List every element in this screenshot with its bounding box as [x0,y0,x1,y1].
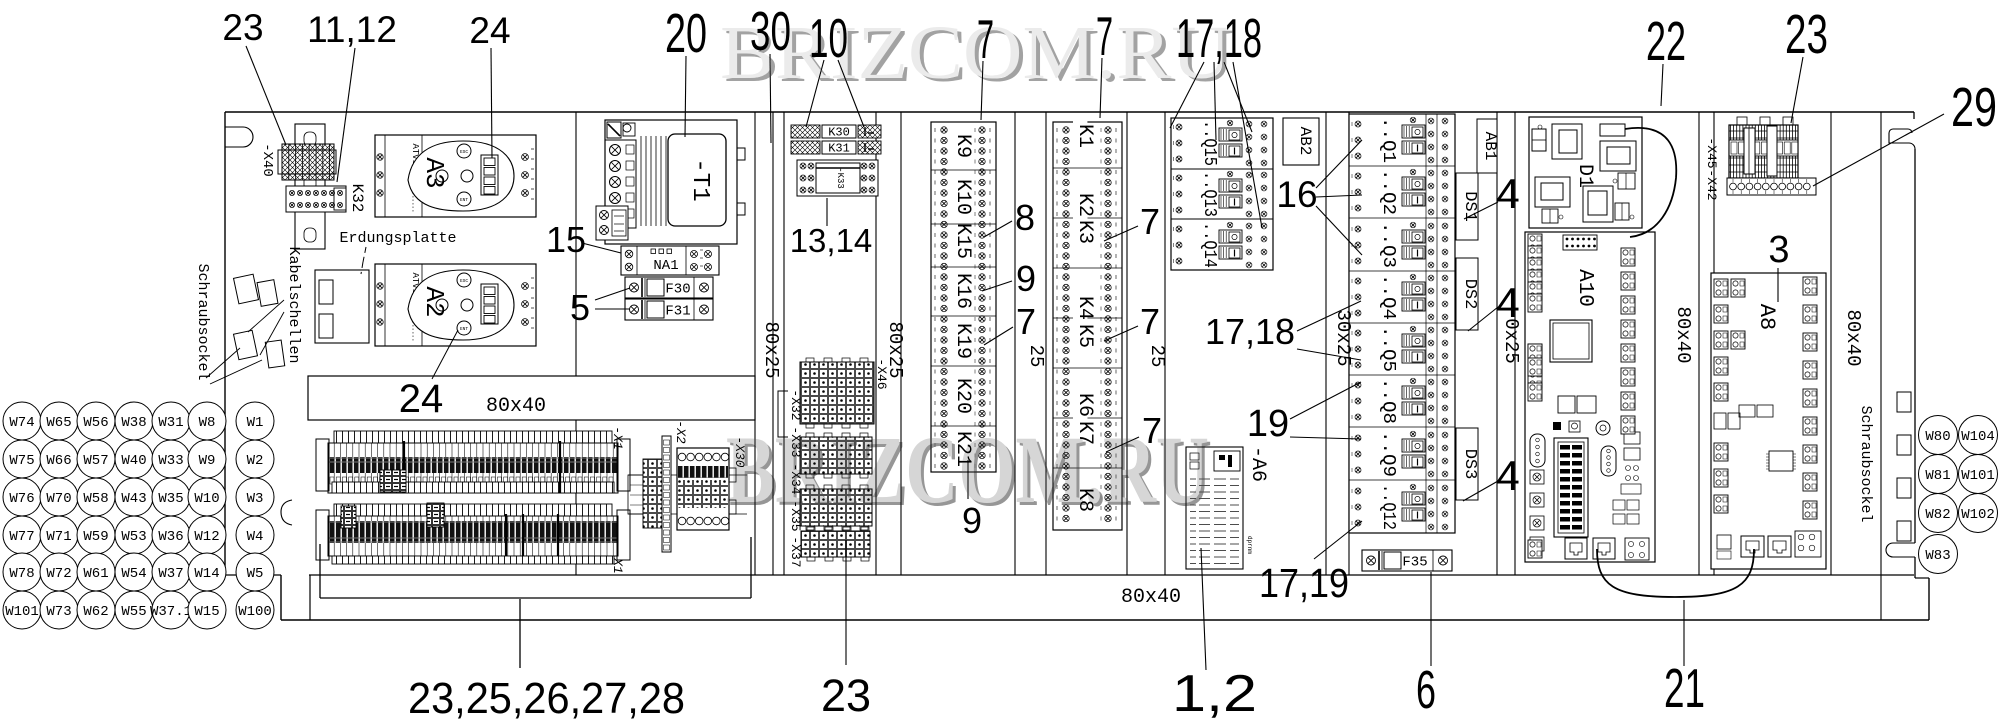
svg-text:Erdungsplatte: Erdungsplatte [339,230,456,247]
svg-text:A2: A2 [419,286,449,317]
svg-text:8: 8 [1015,197,1035,238]
svg-text:Schraubsockel: Schraubsockel [1857,405,1874,522]
svg-text:W82: W82 [1925,507,1950,523]
svg-text:W43: W43 [121,491,146,507]
svg-text:A3: A3 [419,157,449,188]
svg-text:DS2: DS2 [1460,279,1479,310]
svg-text:W10: W10 [194,491,219,507]
svg-text:K9: K9 [951,134,974,158]
svg-text:5: 5 [570,287,590,328]
svg-text:W53: W53 [121,529,146,545]
svg-text:W54: W54 [121,566,146,582]
svg-text:W65: W65 [46,415,71,431]
svg-text:W75: W75 [9,453,34,469]
svg-text:15: 15 [546,219,586,260]
svg-text:22: 22 [1646,10,1686,72]
svg-text:-K33: -K33 [835,167,845,189]
svg-text:23: 23 [1785,3,1828,65]
svg-text:D1: D1 [1573,164,1596,188]
svg-text:9: 9 [1016,258,1036,299]
svg-text:W35: W35 [158,491,183,507]
svg-text:W4: W4 [247,529,264,545]
svg-text:-X1: -X1 [610,426,625,449]
svg-text:Kabelschellen: Kabelschellen [285,246,302,363]
svg-text:W57: W57 [83,453,108,469]
svg-text:W58: W58 [83,491,108,507]
svg-text:25: 25 [1025,345,1047,368]
svg-text:W36: W36 [158,529,183,545]
svg-text:W80: W80 [1925,429,1950,445]
svg-text:K6: K6 [1073,393,1096,417]
svg-text:80x40: 80x40 [486,395,546,418]
svg-text:25: 25 [1146,345,1168,368]
svg-text:W59: W59 [83,529,108,545]
svg-text:19: 19 [1247,403,1289,445]
svg-text:W78: W78 [9,566,34,582]
svg-text:W37: W37 [158,566,183,582]
svg-text:K19: K19 [951,323,974,359]
svg-text:..Q4: ..Q4 [1378,274,1398,320]
svg-text:K1: K1 [1073,124,1096,148]
svg-text:-X42: -X42 [1704,169,1719,200]
svg-text:-X1: -X1 [610,550,625,573]
svg-text:W61: W61 [83,566,108,582]
svg-text:W9: W9 [199,453,216,469]
svg-text:ESC: ESC [460,149,468,155]
svg-text:16: 16 [1276,174,1317,215]
svg-text:W72: W72 [46,566,71,582]
svg-text:..Q12: ..Q12 [1378,484,1398,530]
svg-text:23,25,26,27,28: 23,25,26,27,28 [408,674,685,720]
svg-text:23: 23 [222,7,263,48]
svg-text:A10: A10 [1573,269,1596,307]
svg-text:29: 29 [1951,76,1997,138]
svg-text:W40: W40 [121,453,146,469]
svg-text:..Q14: ..Q14 [1199,222,1219,268]
svg-text:20: 20 [665,2,707,64]
svg-text:BRIZCOM.RU: BRIZCOM.RU [726,416,1209,523]
svg-text:W8: W8 [199,415,216,431]
svg-text:K30: K30 [828,126,850,140]
svg-text:K31: K31 [828,142,850,156]
svg-text:W56: W56 [83,415,108,431]
svg-text:ESC: ESC [460,278,468,284]
svg-text:..Q1: ..Q1 [1378,117,1398,163]
svg-text:W101: W101 [1961,468,1995,484]
svg-text:K15: K15 [951,223,974,259]
svg-text:-X37: -X37 [788,536,803,567]
svg-text:W15: W15 [194,604,219,620]
svg-text:F31: F31 [665,304,690,320]
svg-text:80x25: 80x25 [884,321,906,378]
svg-text:ENT: ENT [460,197,468,203]
svg-text:W5: W5 [247,566,264,582]
svg-text:13,14: 13,14 [790,222,873,259]
svg-text:24: 24 [399,377,444,421]
svg-text:dprnm: dprnm [1246,536,1253,554]
svg-text:..Q8: ..Q8 [1378,378,1398,424]
svg-text:17,19: 17,19 [1259,560,1349,606]
svg-text:W31: W31 [158,415,183,431]
svg-text:23: 23 [821,670,871,720]
svg-text:80x40: 80x40 [1121,586,1181,609]
svg-text:21: 21 [1664,657,1705,719]
svg-text:F35: F35 [1402,555,1427,571]
svg-text:4: 4 [1496,452,1519,499]
svg-text:80x25: 80x25 [760,321,782,378]
svg-text:-A6: -A6 [1246,446,1269,482]
svg-text:W77: W77 [9,529,34,545]
svg-text:W55: W55 [121,604,146,620]
svg-text:W66: W66 [46,453,71,469]
svg-text:7: 7 [1016,301,1036,342]
svg-text:W12: W12 [194,529,219,545]
svg-text:Schraubsockel: Schraubsockel [194,263,211,380]
svg-text:W37.1: W37.1 [150,604,192,620]
svg-text:W70: W70 [46,491,71,507]
svg-text:W3: W3 [247,491,264,507]
svg-text:DS3: DS3 [1460,449,1479,480]
svg-text:W76: W76 [9,491,34,507]
svg-text:-X2: -X2 [673,420,688,444]
svg-text:W101: W101 [5,604,39,620]
svg-text:F30: F30 [665,282,690,298]
svg-text:K3: K3 [1073,220,1096,244]
svg-text:W38: W38 [121,415,146,431]
svg-text:AB1: AB1 [1481,132,1499,161]
svg-text:-X45: -X45 [1704,137,1719,168]
svg-text:7: 7 [1140,301,1160,342]
svg-text:K32: K32 [348,184,366,213]
svg-text:W2: W2 [247,453,264,469]
svg-text:W14: W14 [194,566,219,582]
svg-text:..Q9: ..Q9 [1378,431,1398,477]
svg-text:W71: W71 [46,529,71,545]
svg-text:17,18: 17,18 [1205,311,1295,352]
svg-text:W83: W83 [1925,548,1950,564]
svg-text:W102: W102 [1961,507,1995,523]
svg-text:K4: K4 [1073,296,1096,320]
svg-text:AB2: AB2 [1296,127,1314,156]
svg-text:24: 24 [469,10,510,51]
svg-text:6: 6 [1416,660,1436,720]
svg-text:K16: K16 [951,273,974,309]
svg-text:W62: W62 [83,604,108,620]
svg-text:7: 7 [1140,201,1160,242]
svg-text:K2: K2 [1073,193,1096,217]
svg-text:W33: W33 [158,453,183,469]
svg-text:K10: K10 [951,179,974,215]
svg-text:W73: W73 [46,604,71,620]
svg-text:W104: W104 [1961,429,1995,445]
svg-text:W74: W74 [9,415,34,431]
svg-text:80x40: 80x40 [1672,306,1694,363]
svg-text:3: 3 [1768,229,1789,271]
svg-text:80x40: 80x40 [1842,309,1864,366]
svg-text:DS1: DS1 [1460,191,1479,222]
svg-text:-X40: -X40 [259,143,275,177]
svg-text:-T1: -T1 [686,158,713,201]
svg-text:W100: W100 [238,604,272,620]
svg-text:1,2: 1,2 [1172,665,1257,720]
svg-text:4: 4 [1496,279,1519,326]
svg-text:NA1: NA1 [653,258,678,274]
svg-text:..Q13: ..Q13 [1199,171,1219,217]
svg-text:BRIZCOM.RU: BRIZCOM.RU [720,11,1231,95]
svg-text:A8: A8 [1754,304,1779,330]
svg-text:K5: K5 [1073,324,1096,348]
svg-text:..Q3: ..Q3 [1378,222,1398,268]
svg-text:W1: W1 [247,415,264,431]
svg-text:11,12: 11,12 [307,9,397,50]
svg-text:4: 4 [1496,170,1519,217]
svg-text:W81: W81 [1925,468,1950,484]
svg-text:ENT: ENT [460,326,468,332]
svg-text:K20: K20 [951,378,974,414]
svg-text:..Q2: ..Q2 [1378,169,1398,215]
svg-text:..Q5: ..Q5 [1378,326,1398,372]
